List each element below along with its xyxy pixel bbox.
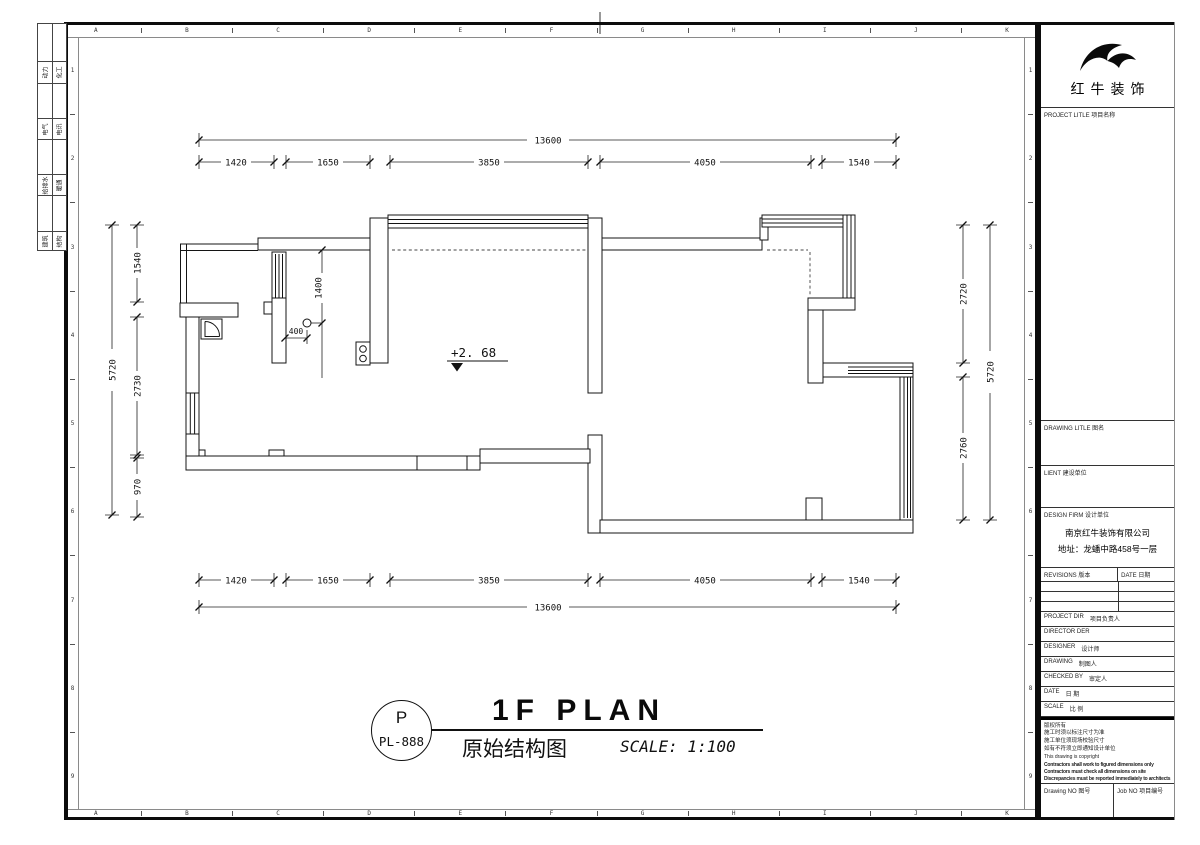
row-label-en: DIRECTOR DER	[1044, 629, 1090, 635]
wall	[808, 310, 823, 383]
pipe-point-symbol	[303, 319, 311, 327]
row-label-cn: 项目负责人	[1090, 614, 1120, 623]
design-firm-label: DESIGN FIRM 设计单位	[1044, 510, 1171, 519]
ruler-label: E	[459, 27, 463, 34]
dim-label: 400	[289, 327, 304, 336]
drawing-no-label: Drawing NO 图号	[1041, 784, 1114, 818]
ruler-label: 4	[1029, 332, 1033, 339]
level-triangle-icon	[451, 363, 463, 372]
corner-window	[180, 244, 258, 303]
design-firm-section: DESIGN FIRM 设计单位 南京红牛装饰有限公司 地址：龙蟠中路458号一…	[1041, 508, 1174, 568]
ruler-label: 5	[71, 420, 75, 427]
ruler-label: I	[823, 27, 827, 34]
drawing-code-bubble: P PL-888	[371, 700, 432, 761]
ruler-label: D	[367, 810, 371, 817]
bull-horn-swoosh-icon	[1076, 37, 1140, 75]
ruler-label: J	[914, 27, 918, 34]
wall	[600, 520, 913, 533]
dim-label: 1420	[225, 577, 247, 587]
row-label-en: PROJECT DIR	[1044, 614, 1084, 620]
ruler-line-left	[78, 37, 79, 810]
discipline-label: 动力	[40, 66, 49, 78]
dim-label: 970	[134, 479, 144, 495]
wall	[602, 238, 762, 250]
title-block: 红牛装饰 PROJECT LITLE 项目名称 DRAWING LITLE 图名…	[1041, 25, 1174, 817]
ruler-label: K	[1005, 810, 1009, 817]
bay-window-top	[762, 215, 855, 227]
window-band	[186, 393, 199, 434]
ruler-columns-top: ABCDEFGHIJK	[68, 24, 1035, 37]
ruler-label: K	[1005, 27, 1009, 34]
discipline-label: 结构	[55, 235, 64, 247]
dim-label: 13600	[534, 137, 561, 147]
ruler-label: F	[550, 27, 554, 34]
ruler-label: 1	[71, 67, 75, 74]
ruler-label: H	[732, 810, 736, 817]
wall	[588, 218, 602, 393]
niche	[201, 319, 222, 339]
ruler-rows-left: 123456789	[67, 37, 78, 810]
dim-label: 3850	[478, 577, 500, 587]
ruler-label: H	[732, 27, 736, 34]
discipline-label: 电讯	[55, 123, 64, 135]
row-label-en: DESIGNER	[1044, 644, 1075, 650]
job-no-label: Job NO 项目编号	[1114, 784, 1166, 818]
ruler-columns-bottom: ABCDEFGHIJK	[68, 808, 1035, 819]
wall	[180, 303, 238, 317]
dim-label: 1650	[317, 577, 339, 587]
dim-label: 1650	[317, 159, 339, 169]
drawing-no-section: Drawing NO 图号 Job NO 项目编号	[1041, 784, 1174, 818]
row-label-en: SCALE	[1044, 704, 1064, 710]
ruler-label: 2	[1029, 155, 1033, 162]
checked-by-row: CHECKED BY 审定人	[1041, 672, 1174, 687]
dim-label: 1540	[134, 252, 144, 274]
row-label-en: DATE	[1044, 689, 1060, 695]
discipline-strip: 动力 化工 电气 电讯 给排水 暖通 建筑 结构	[37, 23, 67, 251]
dim-label: 1420	[225, 159, 247, 169]
row-label-cn: 设计师	[1081, 644, 1099, 653]
pillar	[269, 450, 284, 456]
discipline-label: 电气	[40, 123, 49, 135]
logo-section: 红牛装饰	[1041, 25, 1174, 108]
discipline-label: 建筑	[40, 235, 49, 247]
wall	[370, 218, 388, 363]
drawing-title-label: DRAWING LITLE 图名	[1044, 423, 1171, 432]
ruler-label: 8	[1029, 685, 1033, 692]
ruler-label: 1	[1029, 67, 1033, 74]
revision-row	[1041, 601, 1174, 611]
design-firm-name: 南京红牛装饰有限公司	[1044, 525, 1171, 541]
ruler-label: 7	[71, 597, 75, 604]
level-annotation: +2. 68	[447, 345, 508, 372]
wall	[186, 317, 199, 456]
client-label: LIENT 建设单位	[1044, 468, 1171, 477]
ruler-label: J	[914, 810, 918, 817]
dim-label: 4050	[694, 577, 716, 587]
wall	[186, 456, 480, 470]
ruler-label: F	[550, 810, 554, 817]
ruler-label: 5	[1029, 420, 1033, 427]
ruler-line-top	[68, 37, 1035, 38]
window-band	[900, 377, 913, 520]
pipe-circle	[360, 355, 367, 362]
ruler-label: A	[94, 27, 98, 34]
ruler-label: 6	[71, 508, 75, 515]
discipline-label: 暖通	[55, 179, 64, 191]
copyright-line: This drawing is copyright	[1044, 754, 1171, 761]
dim-label: 4050	[694, 159, 716, 169]
ruler-rows-right: 123456789	[1026, 37, 1035, 810]
dim-label: 13600	[534, 604, 561, 614]
drawing-row: DRAWING 制图人	[1041, 657, 1174, 672]
revision-row	[1041, 591, 1174, 601]
ruler-label: 6	[1029, 508, 1033, 515]
ruler-label: A	[94, 810, 98, 817]
dim-label: 3850	[478, 159, 500, 169]
ruler-label: C	[276, 810, 280, 817]
revision-row	[1041, 581, 1174, 591]
window-band	[388, 215, 588, 228]
discipline-label: 给排水	[40, 176, 49, 194]
dim-label: 1540	[848, 159, 870, 169]
ruler-label: 8	[71, 685, 75, 692]
dim-label: 2720	[960, 283, 970, 305]
row-label-cn: 制图人	[1079, 659, 1097, 668]
copyright-line-bold: Contractors shall work to figured dimens…	[1044, 762, 1171, 769]
wall	[808, 298, 855, 310]
project-dir-row: PROJECT DIR 项目负责人	[1041, 612, 1174, 627]
ruler-label: 3	[1029, 244, 1033, 251]
revisions-table: REVISIONS 版本 DATE 日期	[1041, 568, 1174, 612]
plan-title-cn: 原始结构图	[462, 733, 567, 763]
pillar	[806, 498, 822, 520]
drawing-title-section: DRAWING LITLE 图名	[1041, 421, 1174, 466]
project-title-section: PROJECT LITLE 项目名称	[1041, 108, 1174, 421]
dim-label: 2730	[134, 375, 144, 397]
bay-window-right	[843, 215, 855, 298]
pipe-circle	[360, 346, 367, 353]
designer-row: DESIGNER 设计师	[1041, 642, 1174, 657]
ruler-label: D	[367, 27, 371, 34]
wall	[264, 302, 272, 314]
ruler-label: B	[185, 27, 189, 34]
ruler-label: I	[823, 810, 827, 817]
ruler-label: 4	[71, 332, 75, 339]
wall	[258, 238, 372, 250]
design-firm-address: 地址：龙蟠中路458号一层	[1044, 541, 1171, 557]
client-section: LIENT 建设单位	[1041, 466, 1174, 508]
svg-text:+2. 68: +2. 68	[451, 345, 496, 360]
ruler-label: 9	[71, 773, 75, 780]
drawing-code-top: P	[372, 708, 431, 728]
dim-label: 5720	[987, 361, 997, 383]
date-col-label: DATE 日期	[1118, 568, 1174, 581]
ruler-label: G	[641, 27, 645, 34]
copyright-line: 如有不符须立即通知设计单位	[1044, 746, 1171, 754]
dim-label: 1540	[848, 577, 870, 587]
project-title-label: PROJECT LITLE 项目名称	[1044, 110, 1171, 119]
dim-label: 5720	[109, 359, 119, 381]
scale-note: SCALE: 1:100	[620, 737, 736, 756]
ruler-label: G	[641, 810, 645, 817]
copyright-line-bold: Contractors must check all dimensions on…	[1044, 769, 1171, 776]
row-label-cn: 审定人	[1089, 674, 1107, 683]
date-row: DATE 日 期	[1041, 687, 1174, 702]
row-label-cn: 比 例	[1070, 704, 1084, 713]
director-row: DIRECTOR DER	[1041, 627, 1174, 642]
title-underline	[375, 729, 763, 731]
ruler-label: 9	[1029, 773, 1033, 780]
ruler-label: E	[459, 810, 463, 817]
ruler-label: 3	[71, 244, 75, 251]
walls	[180, 215, 913, 533]
brand-name: 红牛装饰	[1071, 79, 1151, 99]
copyright-line-bold: Discrepancies must be reported immediate…	[1044, 776, 1171, 783]
wall	[480, 449, 590, 463]
ruler-label: B	[185, 810, 189, 817]
ruler-label: 7	[1029, 597, 1033, 604]
plan-title-en: 1F PLAN	[492, 694, 666, 728]
row-label-en: DRAWING	[1044, 659, 1073, 665]
discipline-label: 化工	[55, 66, 64, 78]
ruler-line-right	[1024, 37, 1025, 810]
ruler-label: C	[276, 27, 280, 34]
row-label-cn: 日 期	[1066, 689, 1080, 698]
dim-label: 2760	[960, 437, 970, 459]
row-label-en: CHECKED BY	[1044, 674, 1083, 680]
dim-label: 1400	[315, 277, 325, 299]
frame-border-right	[1174, 22, 1175, 820]
scale-row: SCALE 比 例	[1041, 702, 1174, 717]
drawing-sheet: { "sheet": { "frame": { "cols": ["A","B"…	[0, 0, 1200, 845]
revisions-label: REVISIONS 版本	[1041, 568, 1118, 581]
drawing-code-bottom: PL-888	[372, 734, 431, 749]
ruler-label: 2	[71, 155, 75, 162]
copyright-section: 版权所有 施工时须以标注尺寸为准 施工单位须现场校验尺寸 如有不符须立即通知设计…	[1041, 720, 1174, 784]
